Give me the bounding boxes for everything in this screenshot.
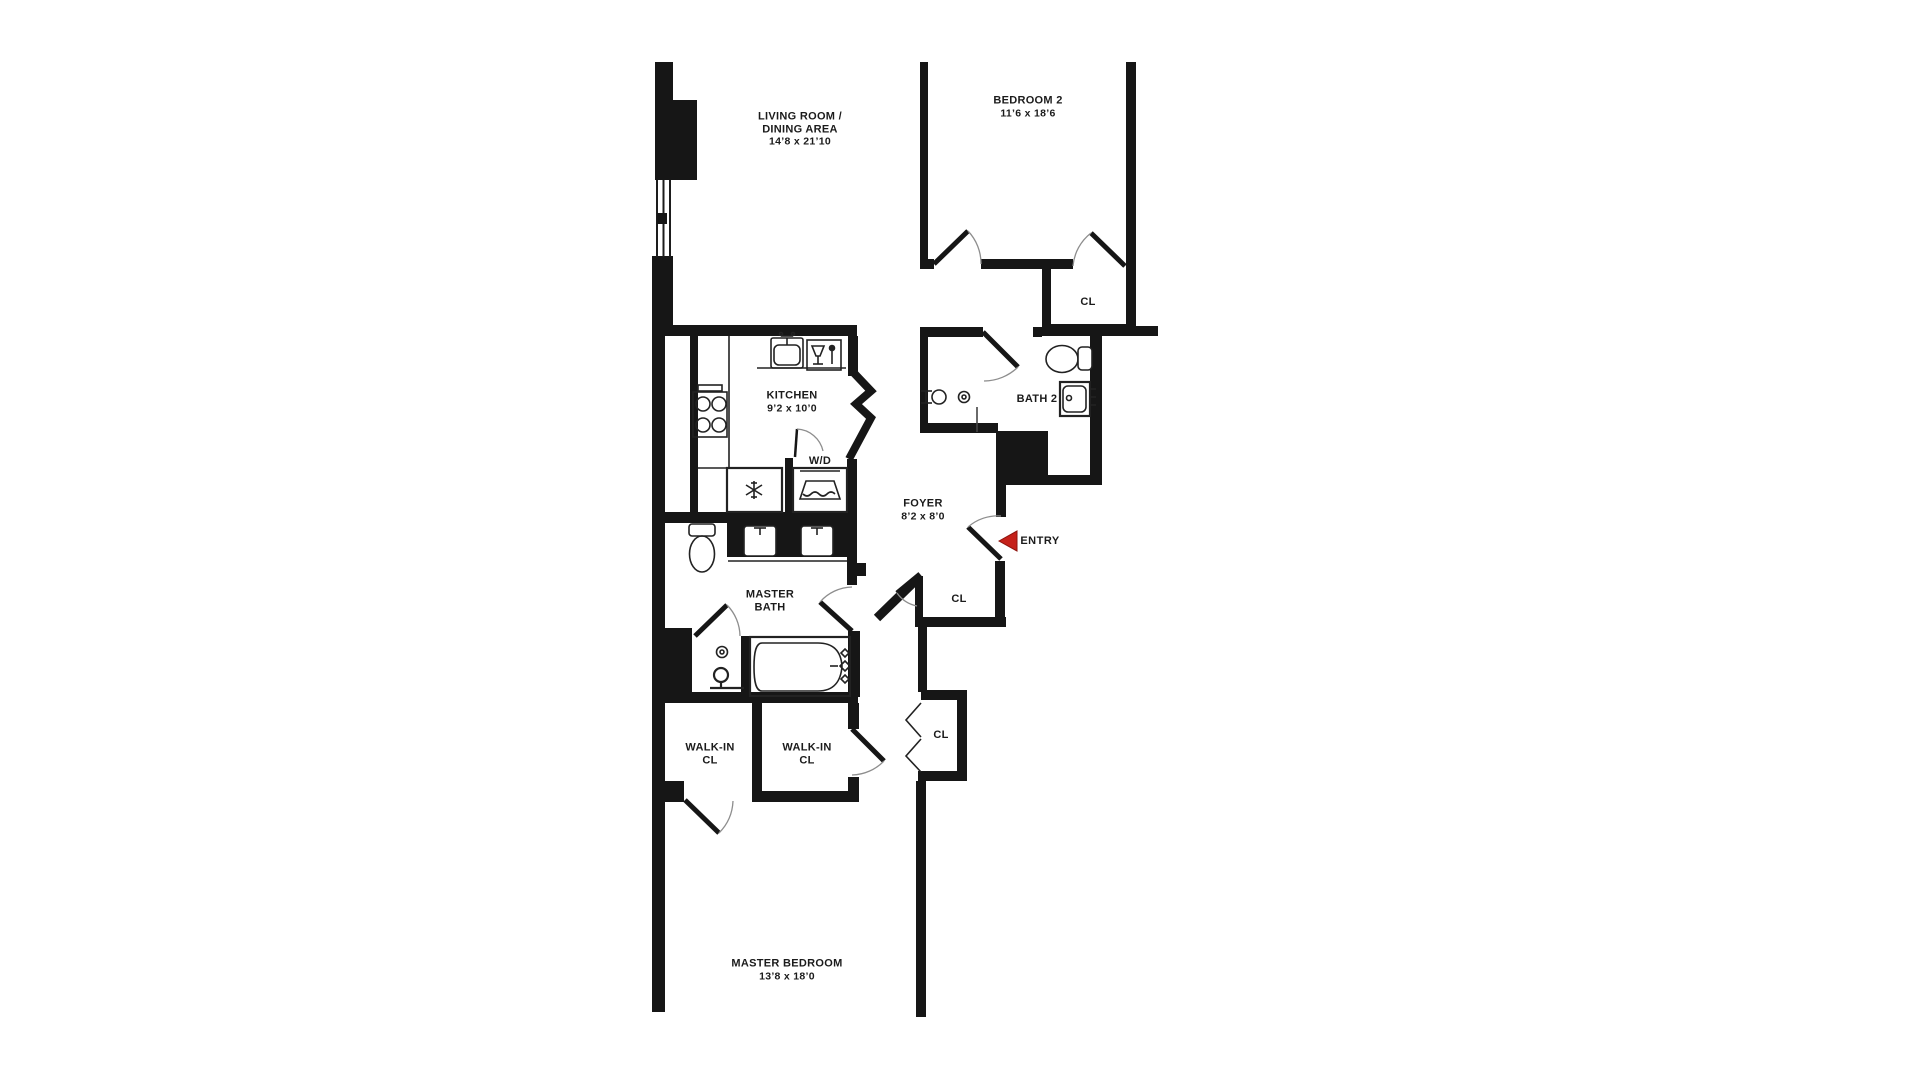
room-name: W/D (809, 455, 831, 468)
living-room-walls (920, 62, 934, 269)
walkin-closet-left-label: WALK-IN CL (685, 742, 734, 767)
foyer-label: FOYER 8’2 x 8’0 (901, 498, 945, 523)
room-name: MASTER BEDROOM (731, 958, 842, 971)
foyer-closet-label: CL (951, 593, 966, 606)
shower-head-icon (710, 647, 744, 689)
floor-plan-drawing (0, 0, 1920, 1080)
room-name: CL (933, 729, 948, 742)
hall-closet-bifold-door (906, 703, 921, 772)
kitchen-label: KITCHEN 9’2 x 10’0 (767, 390, 818, 415)
master-bath-door (820, 587, 852, 631)
bedroom2-label: BEDROOM 2 11’6 x 18’6 (993, 95, 1062, 120)
master-vanity (727, 523, 848, 561)
room-name: CL (782, 754, 831, 767)
entry-text: ENTRY (1020, 535, 1059, 548)
bath2-toilet-icon (1046, 346, 1092, 373)
room-name: CL (1080, 296, 1095, 309)
room-name: DINING AREA (758, 123, 842, 136)
room-dims: 9’2 x 10’0 (767, 402, 818, 415)
vanity-sink-right-icon (801, 526, 833, 556)
washer-dryer-icon (793, 468, 847, 512)
living-room-label: LIVING ROOM / DINING AREA 14’8 x 21’10 (758, 110, 842, 148)
room-name: WALK-IN (685, 742, 734, 755)
kitchen-sink-icon (771, 333, 803, 369)
hallway-walls (916, 627, 927, 1017)
snowflake-icon (746, 481, 762, 499)
walkin-right-door (852, 729, 884, 775)
master-bedroom-label: MASTER BEDROOM 13’8 x 18’0 (731, 958, 842, 983)
laundry-label: W/D (809, 455, 831, 468)
room-dims: 8’2 x 8’0 (901, 510, 945, 523)
bath2-door (983, 332, 1018, 381)
room-name: CL (951, 593, 966, 606)
master-bath-label: MASTER BATH (746, 589, 794, 614)
bedroom2-closet-door (1073, 233, 1125, 266)
vanity-sink-left-icon (744, 526, 776, 556)
window (657, 180, 670, 257)
room-dims: 14’8 x 21’10 (758, 135, 842, 148)
bedroom2-door (934, 231, 981, 264)
room-dims: 11’6 x 18’6 (993, 107, 1062, 120)
floor-plan-page: LIVING ROOM / DINING AREA 14’8 x 21’10 B… (0, 0, 1920, 1080)
master-toilet-icon (689, 524, 715, 572)
stove-icon (693, 385, 727, 437)
room-name: BEDROOM 2 (993, 95, 1062, 108)
laundry-door (795, 429, 823, 457)
room-name: KITCHEN (767, 390, 818, 403)
bathtub-icon (750, 637, 850, 696)
room-name: BATH (746, 601, 794, 614)
bath2-vanity-sink-icon (1060, 382, 1096, 416)
master-shower-door (695, 605, 740, 636)
hall-closet-label: CL (933, 729, 948, 742)
bedroom2-closet-walls (1042, 269, 1158, 336)
walkin-left-door (685, 800, 733, 833)
dishwasher-icon (807, 340, 841, 370)
room-name: FOYER (901, 498, 945, 511)
exterior-left-wall (652, 62, 697, 1012)
room-name: BATH 2 (1017, 393, 1058, 406)
entry-door (968, 516, 1001, 559)
room-name: MASTER (746, 589, 794, 602)
entry-label: ENTRY (1020, 535, 1059, 548)
room-dims: 13’8 x 18’0 (731, 970, 842, 983)
room-name: CL (685, 754, 734, 767)
room-name: WALK-IN (782, 742, 831, 755)
entry-arrow-icon (999, 531, 1017, 551)
bedroom2-closet-label: CL (1080, 296, 1095, 309)
room-name: LIVING ROOM / (758, 110, 842, 123)
shower-drain-icon (959, 392, 970, 403)
bath2-label: BATH 2 (1017, 393, 1058, 406)
refrigerator-icon (727, 468, 782, 512)
walkin-closet-right-label: WALK-IN CL (782, 742, 831, 767)
